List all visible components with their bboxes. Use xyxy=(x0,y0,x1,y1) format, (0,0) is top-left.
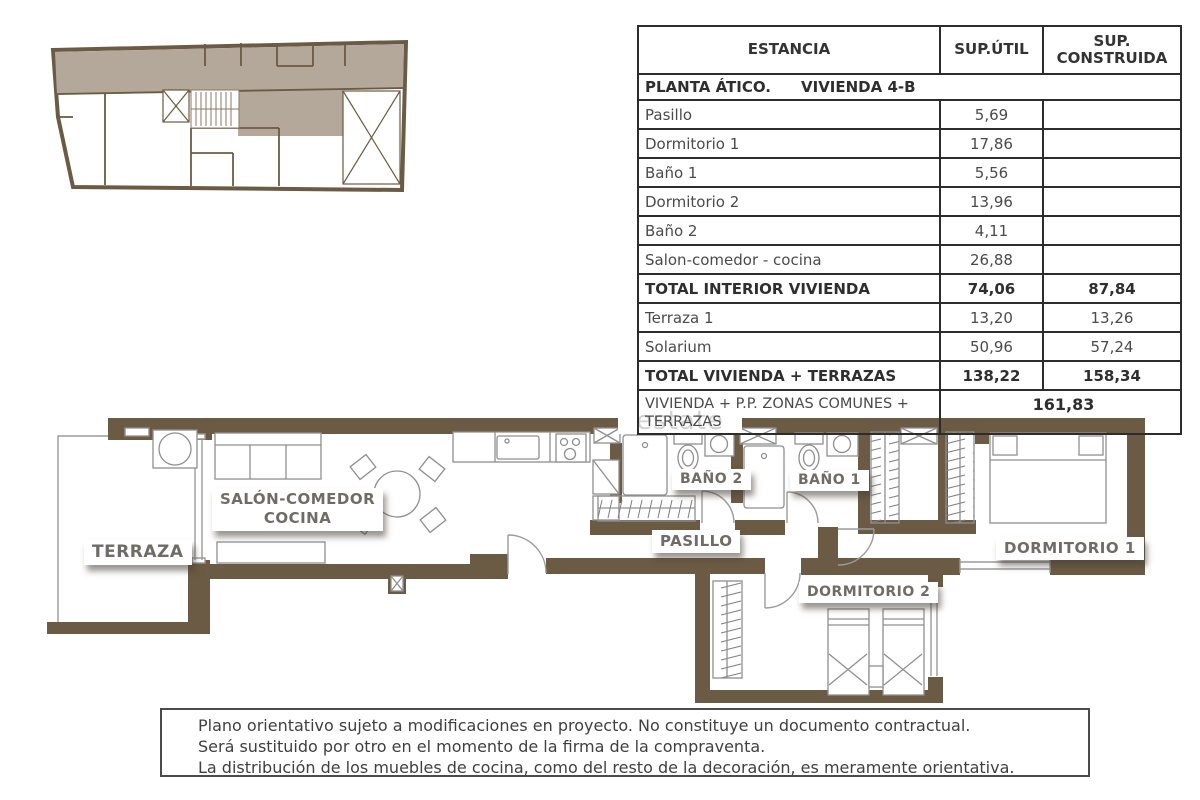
table-footer-row: VIVIENDA + P.P. ZONAS COMUNES + TERRAZAS… xyxy=(638,390,1181,434)
table-row: Solarium 50,96 57,24 xyxy=(638,332,1181,361)
dorm2-single-bed-1 xyxy=(828,609,869,695)
col-header-estancia: ESTANCIA xyxy=(638,26,940,74)
disclaimer-line-1: Plano orientativo sujeto a modificacione… xyxy=(198,715,1088,736)
dorm1-wardrobe-2 xyxy=(946,432,974,523)
disclaimer-line-2: Será sustituido por otro en el momento d… xyxy=(198,736,1088,757)
section-planta: PLANTA ÁTICO. xyxy=(645,78,771,96)
col-header-sup-line2: CONSTRUIDA xyxy=(1044,50,1180,67)
bano1-toilet-icon xyxy=(795,433,823,471)
hall-coat-rack xyxy=(598,496,695,521)
table-row: Terraza 1 13,20 13,26 xyxy=(638,303,1181,332)
table-row-total-vivienda: TOTAL VIVIENDA + TERRAZAS 138,22 158,34 xyxy=(638,361,1181,390)
keyplan-lightwell xyxy=(343,91,400,184)
bano1-washbasin-icon xyxy=(827,433,858,456)
keyplan-elevator xyxy=(163,90,189,122)
dorm1-window xyxy=(960,559,1050,573)
table-row: Pasillo 5,69 xyxy=(638,100,1181,129)
wall-vent xyxy=(125,428,149,436)
bano2-shower-icon xyxy=(623,435,667,495)
dorm2-door-arc xyxy=(765,573,800,608)
kitchen-counter xyxy=(453,432,590,462)
bano2-toilet-icon xyxy=(674,433,702,471)
building-key-plan xyxy=(45,33,435,208)
table-row: Salon-comedor - cocina 26,88 xyxy=(638,245,1181,274)
sofa xyxy=(215,433,321,479)
table-header-row: ESTANCIA SUP.ÚTIL SUP. CONSTRUIDA xyxy=(638,26,1181,74)
dorm2-wardrobe xyxy=(713,581,742,678)
salon-label-line1: SALÓN-COMEDOR xyxy=(220,490,375,509)
table-row: Dormitorio 2 13,96 xyxy=(638,187,1181,216)
area-table: ESTANCIA SUP.ÚTIL SUP. CONSTRUIDA PLANTA… xyxy=(637,25,1182,435)
ac-unit xyxy=(153,430,197,468)
keyplan-stairs xyxy=(191,90,239,128)
dorm1-wardrobe-1 xyxy=(871,432,899,523)
kitchen-sink-icon xyxy=(497,436,539,459)
room-label-bano1: BAÑO 1 xyxy=(790,470,869,491)
bano2-washbasin-icon xyxy=(705,433,734,456)
pillar-vent-box xyxy=(391,576,403,591)
disclaimer-line-3: La distribución de los muebles de cocina… xyxy=(198,757,1088,778)
col-header-sup-util: SUP.ÚTIL xyxy=(940,26,1043,74)
terraza-outline xyxy=(58,436,108,622)
room-label-bano2: BAÑO 2 xyxy=(672,469,751,490)
dorm2-single-bed-2 xyxy=(883,609,924,695)
table-row: Baño 1 5,56 xyxy=(638,158,1181,187)
entrance-door-arc xyxy=(508,535,546,574)
dorm2-nightstand xyxy=(869,666,883,687)
col-header-sup-line1: SUP. xyxy=(1044,33,1180,50)
dorm1-double-bed xyxy=(990,433,1106,523)
salon-label-line2: COCINA xyxy=(220,509,375,528)
stove-icon xyxy=(556,434,586,462)
section-vivienda: VIVIENDA 4-B xyxy=(801,78,916,96)
room-label-salon: SALÓN-COMEDOR COCINA xyxy=(212,488,383,531)
col-header-sup-construida: SUP. CONSTRUIDA xyxy=(1043,26,1181,74)
room-label-dormitorio2: DORMITORIO 2 xyxy=(799,582,938,603)
apartment-floor-plan xyxy=(45,392,1155,712)
bano1-door-arc xyxy=(787,492,818,523)
floor-plan-sheet: ESTANCIA SUP.ÚTIL SUP. CONSTRUIDA PLANTA… xyxy=(0,0,1200,800)
sideboard xyxy=(217,542,325,563)
room-label-pasillo: PASILLO xyxy=(652,530,740,553)
room-label-dormitorio1: DORMITORIO 1 xyxy=(996,537,1144,560)
table-row: Baño 2 4,11 xyxy=(638,216,1181,245)
table-section-row: PLANTA ÁTICO.VIVIENDA 4-B xyxy=(638,74,1181,100)
table-row: Dormitorio 1 17,86 xyxy=(638,129,1181,158)
bano2-door-arc xyxy=(702,491,734,523)
table-row-total-interior: TOTAL INTERIOR VIVIENDA 74,06 87,84 xyxy=(638,274,1181,303)
disclaimer-box: Plano orientativo sujeto a modificacione… xyxy=(160,708,1090,777)
room-label-terraza: TERRAZA xyxy=(84,540,192,565)
